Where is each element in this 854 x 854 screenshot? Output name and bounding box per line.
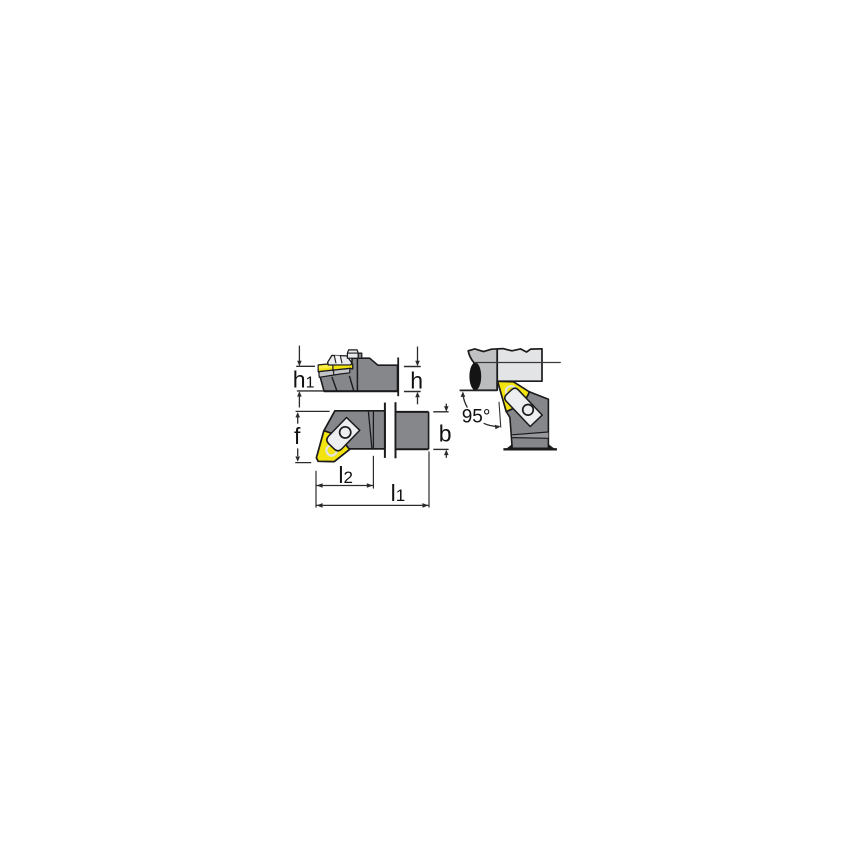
- svg-text:95°: 95°: [462, 406, 491, 427]
- svg-text:b: b: [439, 420, 452, 446]
- svg-text:h: h: [410, 367, 423, 393]
- svg-text:f: f: [294, 423, 301, 449]
